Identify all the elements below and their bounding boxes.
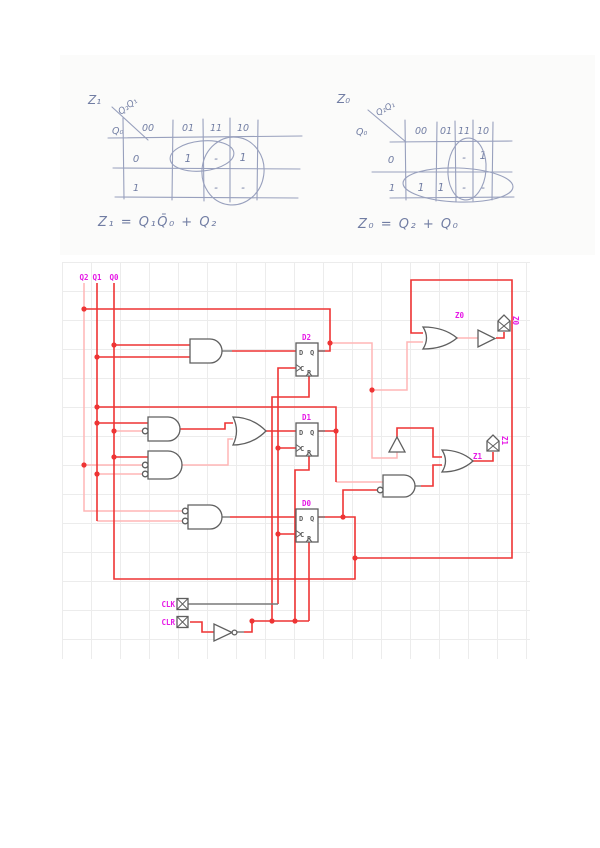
ff-pin-c: C: [300, 365, 304, 373]
flipflop-d0[interactable]: D Q C R D0: [296, 499, 318, 543]
junction-dot[interactable]: [94, 404, 99, 409]
or-z0-label: Z0: [455, 311, 465, 320]
inverted-input-bubble: [142, 471, 148, 477]
kmap-cell: 1: [240, 152, 247, 164]
kmap-z1-axis-top: Q₂Q₁: [117, 96, 140, 117]
kmap-z1: Z₁ Q₂Q₁ Q₀ 00 01 11 10 0 1 1 - 1 -: [87, 93, 302, 230]
kmap-row-header: 1: [389, 183, 395, 194]
or-z1-label: Z1: [473, 452, 483, 461]
kmap-z0: Z₀ Q₂Q₁ Q₀ 00 01 11 10 0 1 - 1 1 1: [336, 92, 514, 232]
kmap-cell: 1: [438, 182, 445, 194]
kmap-row-header: 0: [133, 154, 139, 165]
ff-pin-q: Q: [310, 515, 314, 523]
z1-pin-label: Z1: [500, 436, 509, 446]
junction-dot[interactable]: [111, 428, 116, 433]
clr-label: CLR: [161, 618, 175, 627]
flipflop-label: D0: [302, 499, 312, 508]
kmap-z0-equation: Z₀ = Q₂ + Q₀: [357, 217, 459, 232]
kmap-grid-line: [108, 136, 302, 138]
diagram-canvas: Z₁ Q₂Q₁ Q₀ 00 01 11 10 0 1 1 - 1 -: [0, 0, 600, 848]
kmap-grid-line: [123, 118, 124, 199]
or-gate-z0[interactable]: [423, 327, 457, 349]
junction-dot[interactable]: [94, 354, 99, 359]
junction-dot[interactable]: [275, 445, 280, 450]
junction-dot[interactable]: [111, 454, 116, 459]
inverted-input-bubble: [377, 487, 383, 493]
junction-dot[interactable]: [352, 555, 357, 560]
wire[interactable]: [421, 465, 442, 486]
clk-label: CLK: [161, 600, 175, 609]
kmap-col-header: 01: [182, 123, 194, 134]
wire-q2-feedback[interactable]: [330, 343, 397, 458]
page: Z₁ Q₂Q₁ Q₀ 00 01 11 10 0 1 1 - 1 -: [0, 0, 600, 848]
junction-dot[interactable]: [81, 462, 86, 467]
kmap-z0-diagonal: [368, 110, 406, 142]
junction-dot[interactable]: [269, 618, 274, 623]
junction-dot[interactable]: [81, 306, 86, 311]
wire-clock-rail[interactable]: [278, 368, 296, 604]
clk-input-pin[interactable]: CLK: [161, 599, 188, 610]
kmap-col-header: 00: [142, 123, 154, 134]
flipflop-d1[interactable]: D Q C R D1: [296, 413, 318, 457]
inverted-input-bubble: [142, 428, 148, 434]
junction-dot[interactable]: [292, 618, 297, 623]
ff-pin-c: C: [300, 531, 304, 539]
kmap-col-header: 10: [237, 123, 249, 134]
z0-output-pin[interactable]: Z0: [498, 315, 520, 331]
clr-input-pin[interactable]: CLR: [161, 617, 188, 628]
z1-output-pin[interactable]: Z1: [487, 435, 509, 451]
buffer-gate-up[interactable]: [389, 437, 405, 452]
kmap-z1-title: Z₁: [87, 93, 101, 107]
rail-label-q2: Q2: [79, 273, 88, 282]
kmap-col-header: 11: [458, 126, 470, 137]
flipflop-label: D2: [302, 333, 311, 342]
kmap-z0-title: Z₀: [336, 92, 350, 106]
junction-dot[interactable]: [249, 618, 254, 623]
inverted-input-bubble: [182, 518, 188, 524]
ff-pin-d: D: [299, 515, 303, 523]
inverter-bubble: [232, 630, 237, 635]
kmap-z0-axis-side: Q₀: [356, 127, 367, 138]
and-gate-d1-top[interactable]: [148, 417, 180, 441]
kmap-col-header: 00: [415, 126, 427, 137]
and-gate-z1[interactable]: [383, 475, 415, 497]
kmap-col-header: 10: [477, 126, 489, 137]
kmap-z1-axis-side: Q₀: [112, 126, 123, 137]
ff-pin-d: D: [299, 429, 303, 437]
wire[interactable]: [180, 423, 233, 429]
junction-dot[interactable]: [327, 340, 332, 345]
wire[interactable]: [343, 490, 379, 517]
inverted-input-bubble: [142, 462, 148, 468]
ff-pin-c: C: [300, 445, 304, 453]
and-gate-d1-bottom[interactable]: [148, 451, 182, 479]
kmap-grid-line: [113, 168, 300, 169]
buffer-gate-z0[interactable]: [478, 330, 495, 347]
kmap-col-header: 11: [210, 123, 222, 134]
flipflop-label: D1: [302, 413, 312, 422]
kmap-cell: 1: [418, 182, 425, 194]
ff-pin-q: Q: [310, 429, 314, 437]
kmap-z1-equation: Z₁ = Q₁Q̄₀ + Q₂: [97, 215, 218, 230]
junction-dot[interactable]: [340, 514, 345, 519]
kmap-cell: -: [214, 153, 218, 165]
or-gate-z1[interactable]: [442, 450, 473, 472]
flipflop-d2[interactable]: D Q C R D2: [296, 333, 318, 377]
junction-dot[interactable]: [94, 420, 99, 425]
kmap-cell: 1: [185, 153, 192, 165]
logic-circuit: D Q C R D2 D Q C R D1 D Q: [79, 273, 520, 641]
inverted-input-bubble: [182, 508, 188, 514]
z0-pin-label: Z0: [511, 316, 520, 326]
kmap-grid-line: [257, 120, 258, 200]
and-gate-d0[interactable]: [188, 505, 222, 529]
kmap-cell: -: [462, 152, 466, 164]
kmap-grid-line: [492, 122, 493, 200]
kmap-cell: -: [462, 182, 466, 194]
wire[interactable]: [496, 332, 504, 338]
junction-dot[interactable]: [333, 428, 338, 433]
kmap-grid-line: [455, 121, 456, 202]
and-gate-d2[interactable]: [190, 339, 222, 363]
junction-dot[interactable]: [369, 387, 374, 392]
kmap-col-header: 01: [440, 126, 452, 137]
wire[interactable]: [182, 439, 233, 465]
ff-pin-d: D: [299, 349, 303, 357]
kmap-grid-line: [390, 197, 514, 198]
junction-dot[interactable]: [111, 342, 116, 347]
kmap-row-header: 0: [388, 155, 394, 166]
not-gate-clr[interactable]: [214, 624, 232, 641]
wire-clr[interactable]: [190, 622, 214, 632]
rail-label-q1: Q1: [92, 273, 102, 282]
junction-dot[interactable]: [275, 531, 280, 536]
junction-dot[interactable]: [94, 471, 99, 476]
gates: [142, 327, 495, 641]
wire-z0-top-loop[interactable]: [355, 280, 512, 558]
kmap-row-header: 1: [133, 183, 139, 194]
kmap-cell: -: [214, 182, 218, 194]
rail-label-q0: Q0: [109, 273, 119, 282]
wire[interactable]: [372, 342, 423, 390]
ff-pin-q: Q: [310, 349, 314, 357]
kmap-grid-line: [115, 197, 298, 198]
kmap-grid-line: [390, 141, 512, 142]
kmap-z0-axis-top: Q₂Q₁: [375, 100, 397, 119]
kmap-cell: -: [241, 182, 245, 194]
or-gate-d1[interactable]: [233, 417, 266, 445]
kmap-grid-line: [172, 120, 173, 200]
